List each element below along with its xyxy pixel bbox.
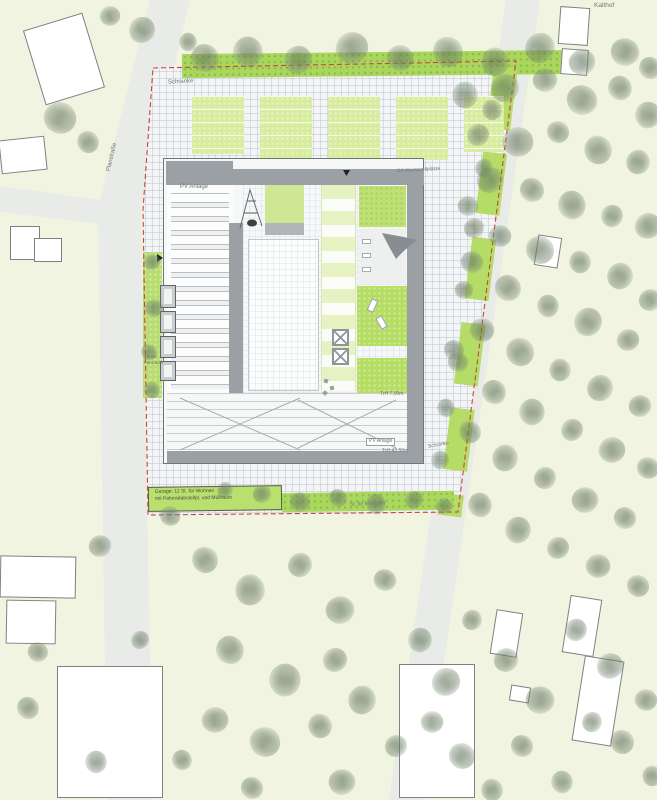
tree-icon [511,735,533,757]
roof-x-brace [180,398,396,450]
context-building [558,6,591,46]
context-building [0,555,76,598]
eave-height-label-south: TrH 43,50m [382,449,408,455]
context-building [34,238,62,262]
district-label: Kalthof [594,2,614,9]
barrier-label-north: Schranke [168,78,194,86]
play-structure-icon [240,190,262,228]
context-building [6,600,57,645]
pv-label-bottom-wing: PV Anlage [366,438,395,446]
eave-height-label-courtyard: TrH 7,00m [380,392,403,398]
bike-count-label-line2: Fahrräder [144,361,164,366]
site-plan-canvas: Garage: 11 St. für Wohnen mit Fahrradabs… [0,0,657,800]
context-building [57,666,163,798]
entrance-arrow-icon [343,170,350,176]
tree-icon [526,236,555,265]
pv-label-left-wing: PV Anlage [180,184,208,191]
shade-sail-icon [382,233,417,259]
tree-icon [191,44,219,72]
context-building [0,136,48,175]
